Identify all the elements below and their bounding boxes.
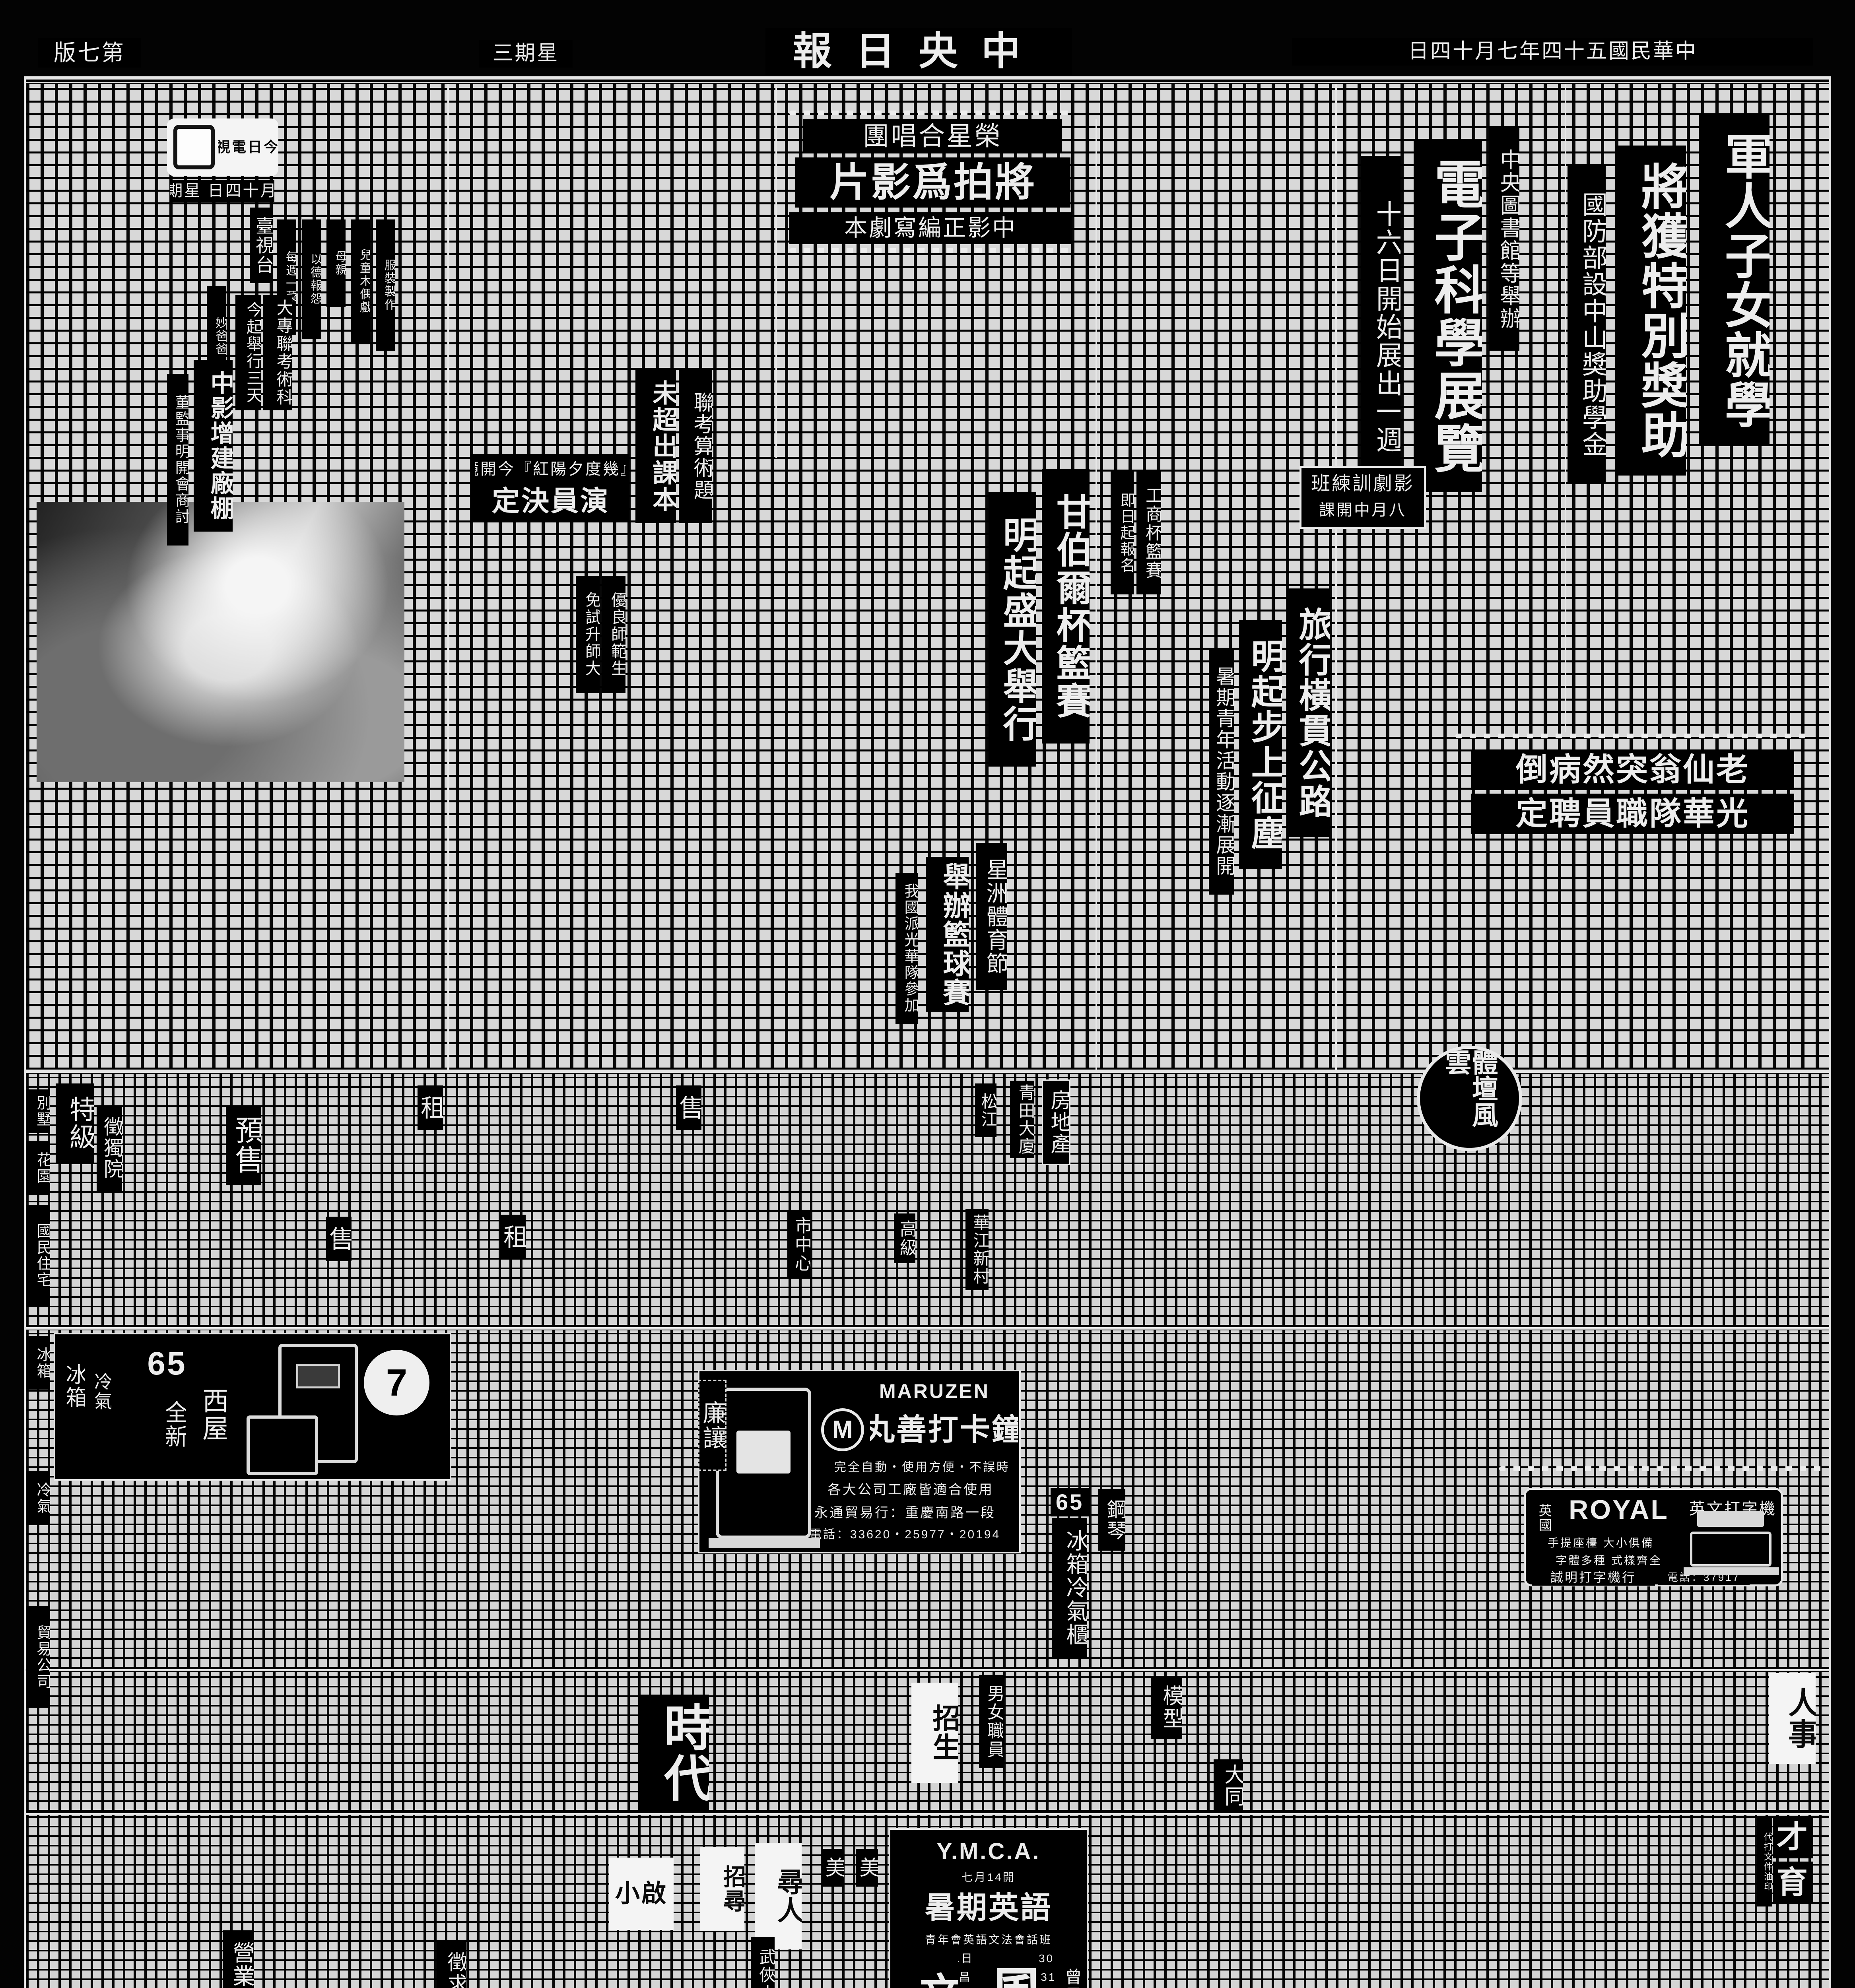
drama-class-line-2: 課開中月八: [1304, 499, 1421, 522]
royal-typewriter-carriage: [1697, 1511, 1764, 1527]
rule-col-a: [447, 84, 449, 1070]
royal-dots: [1499, 1466, 1822, 1471]
classified-label-piano: 鋼琴: [1098, 1489, 1125, 1551]
headline-choir-kicker: 團唱合星榮: [803, 119, 1062, 153]
sunset-movie-line-1: 鏡開今『紅陽夕度幾』: [475, 458, 625, 480]
rule-col-b: [1096, 119, 1097, 1070]
headline-military-sub: 國防部設中山獎助學金: [1568, 165, 1606, 483]
recruit-students-box: 招生: [911, 1683, 958, 1783]
tv-program-4: 以德報怨: [302, 219, 321, 339]
ymca-ad-title: Y.M.C.A.: [897, 1836, 1080, 1867]
beauty-col-2: 美: [856, 1849, 878, 1887]
masthead-title: 報日央中: [765, 28, 1072, 75]
appliance-ad-fridge-label: 冰箱: [60, 1339, 85, 1433]
classified-label-times: 時代: [639, 1695, 709, 1811]
rule-band-2: [24, 1327, 1831, 1330]
beauty-col-1: 美: [822, 1849, 844, 1887]
rule-col-c: [1335, 84, 1337, 1070]
royal-ad-line-2: 字體多種 式樣齊全: [1542, 1552, 1676, 1569]
classified-label-detached: 徵獨院: [97, 1105, 122, 1191]
headline-science-main: 電子科學展覽: [1414, 140, 1482, 492]
classified-label-qingtian: 青田大廈: [1010, 1081, 1034, 1158]
classified-label-fridge65: 65: [1051, 1488, 1089, 1516]
sunset-movie-line-2: 定決員演: [487, 483, 614, 519]
headline-gamble-cup-2: 明起盛大舉行: [989, 492, 1036, 767]
headline-crossroad-trip-1: 旅行橫貫公路: [1287, 588, 1330, 837]
rule-band-1: [24, 1070, 1831, 1073]
classified-label-premium: 特級: [56, 1083, 94, 1163]
date-line: 日四十月七年四十五國民華中: [1292, 38, 1813, 66]
deco-dots-elder: [1455, 734, 1813, 738]
headline-exam-math-2: 未超出課本: [635, 369, 676, 523]
royal-ad-origin: 英國: [1531, 1495, 1551, 1541]
headline-elder-ill-1: 倒病然突翁仙老: [1471, 749, 1794, 790]
royal-ad-line-1: 手提座檯 大小俱備: [1534, 1535, 1668, 1551]
appliance-ad-brandnew: 全新: [157, 1392, 186, 1457]
headline-crossroad-trip-2: 明起步上征塵: [1239, 620, 1282, 869]
deco-dots-choir-top: [789, 111, 1072, 115]
maruzen-punchclock-dial: [736, 1431, 791, 1474]
headline-choir-main: 片影爲拍將: [795, 157, 1070, 208]
tv-logo-text: 視電日今: [218, 127, 278, 167]
appliance-ad-westinghouse: 西屋: [196, 1379, 227, 1450]
classified-label-rent-2: 租: [418, 1085, 443, 1130]
headline-crossroad-trip-sub: 暑期青年活動逐漸展開: [1209, 648, 1234, 895]
rule-top-1: [24, 76, 1831, 80]
appliance-ad-unit-front: [247, 1415, 318, 1475]
headline-normal-students-2: 免試升師大: [576, 576, 600, 693]
culture-label: 文化: [911, 1948, 958, 1988]
headline-cmpc-studio: 中影增建廠棚: [194, 360, 233, 532]
classified-label-downtown: 市中心: [787, 1212, 810, 1277]
missing-person-box: 尋人: [755, 1843, 802, 1949]
drama-class-line-1: 班練訓劇影: [1304, 472, 1421, 496]
appliance-ad-model: 65: [139, 1343, 195, 1384]
headline-exam-math-1: 聯考算術題: [679, 369, 712, 523]
page-number-label: 版七第: [38, 38, 141, 68]
newspaper-page: 版七第 三期星 報日央中 日四十月七年四十五國民華中 視電日今三期星 日四十月七…: [0, 0, 1855, 1988]
tv-program-3: 母親: [326, 219, 346, 307]
classified-label-model: 模型: [1151, 1676, 1182, 1739]
sports-column-stamp: 體壇風雲: [1417, 1046, 1522, 1151]
headline-biz-cup-2: 即日起報名: [1111, 471, 1134, 594]
classified-label-presale: 預售: [226, 1105, 261, 1185]
classified-label-staff: 男女職員: [979, 1675, 1003, 1768]
rule-band-4: [24, 1813, 1831, 1815]
headline-military-main-2: 將獲特別獎助: [1615, 146, 1686, 476]
classified-label-datong: 大同: [1214, 1759, 1243, 1812]
index-label-garden: 花園: [26, 1141, 50, 1195]
maruzen-m-circle-icon: M: [821, 1408, 864, 1451]
rule-top-2: [24, 82, 1831, 83]
deco-dots-choir-bottom: [789, 248, 1072, 253]
classified-label-songjiang: 松江: [975, 1083, 996, 1137]
maruzen-ad-line-1: 完全自動・使用方便・不誤時: [827, 1458, 1017, 1477]
maruzen-ad-brand-latin: MARUZEN: [855, 1379, 1014, 1404]
ymca-ad-kicker: 七月14開: [897, 1870, 1080, 1885]
ymca-ad-line-1: 青年會英語文法會話班: [894, 1932, 1083, 1948]
headline-singapore-sports-1: 星洲體育節: [976, 843, 1007, 990]
classified-label-sale-2: 售: [326, 1217, 352, 1261]
classified-noise-1: [26, 1074, 1829, 1326]
maruzen-ad-line-2: 各大公司工廠皆適合使用: [803, 1480, 1018, 1500]
rule-band-3: [24, 1669, 1831, 1671]
class-label-business: 營業: [223, 1930, 254, 1988]
maruzen-ad-phone: 電話：33620・25977・20194: [791, 1526, 1019, 1543]
royal-ad-brand: ROYAL: [1553, 1492, 1684, 1528]
headline-singapore-sports-2: 舉辦籃球賽: [926, 857, 969, 1012]
appliance-ad-unit-window: [296, 1364, 340, 1388]
headline-joint-exam-art-2: 今起舉行三天: [235, 295, 261, 410]
index-label-aircon: 冷氣: [26, 1471, 50, 1525]
headline-gamble-cup-1: 甘伯爾杯籃賽: [1042, 469, 1090, 744]
appliance-ad-aircon-label: 冷氣: [87, 1352, 111, 1431]
classified-label-wuxia: 武俠小說: [751, 1937, 775, 1988]
classified-label-rent-1: 租: [500, 1215, 526, 1259]
index-label-villa: 別墅: [26, 1089, 50, 1133]
maruzen-punchclock-base: [709, 1538, 820, 1548]
weekday-label: 三期星: [479, 40, 573, 68]
fengshui-label: 風水: [971, 1946, 1039, 1988]
talent-services-col: 代打文件油印: [1757, 1817, 1772, 1906]
small-notice-box: 小啟: [609, 1858, 674, 1930]
tv-set-icon: [173, 125, 215, 169]
classified-label-wanted: 徵求: [437, 1940, 466, 1988]
headline-science-sub: 十六日開始展出一週: [1361, 156, 1400, 498]
index-label-fridge: 冰箱: [26, 1336, 50, 1390]
classified-label-lease: 廉讓: [698, 1380, 726, 1471]
appliance-ad-brand-circle: 7: [364, 1350, 429, 1415]
rule-col-e: [775, 84, 777, 458]
headline-singapore-sports-sub: 我國派光華隊參加: [895, 873, 918, 1024]
ymca-ad-course: 暑期英語: [915, 1889, 1062, 1928]
headline-normal-students-1: 優良師範生: [602, 576, 625, 693]
tv-program-1: 服裝製作: [376, 219, 395, 351]
headline-choir-sub: 本劇寫編正影中: [789, 212, 1072, 244]
rule-right-edge: [1829, 76, 1831, 1988]
fengshui-master: 曾子南: [1056, 1960, 1080, 1988]
rule-left-edge: [24, 76, 26, 1988]
headline-joint-exam-art-1: 大專聯考術科: [263, 295, 292, 410]
headline-science-kicker: 中央圖書館等舉辦: [1489, 128, 1519, 351]
seek-notice-box: 招尋: [700, 1847, 744, 1931]
classified-label-sale-1: 售: [676, 1085, 701, 1130]
personnel-box: 人事: [1769, 1673, 1816, 1764]
tv-station-label: 臺視台: [250, 208, 273, 283]
index-label-trading-co: 貿易公司: [26, 1606, 50, 1708]
tv-program-2: 兒童木偶戲: [351, 219, 370, 343]
royal-ad-shop: 誠明打字機行: [1532, 1569, 1655, 1586]
classified-label-huajiang: 華江新村: [965, 1209, 989, 1290]
talent-label-2: 育: [1773, 1862, 1813, 1904]
royal-typewriter-base: [1684, 1567, 1779, 1575]
news-photo: [37, 502, 404, 782]
headline-military-main-1: 軍人子女就學: [1699, 115, 1770, 445]
headline-cmpc-studio-sub: 董監事明開會商討: [167, 374, 188, 546]
royal-typewriter-body: [1690, 1532, 1771, 1567]
headline-biz-cup-1: 工商杯籃賽: [1136, 471, 1161, 594]
maruzen-ad-line-3: 永通貿易行：重慶南路一段: [791, 1503, 1019, 1523]
classified-label-highclass: 高級: [894, 1213, 915, 1263]
classified-label-fridge-cabinet: 冰箱冷氣櫃: [1052, 1518, 1087, 1657]
rule-col-d: [1565, 84, 1566, 732]
classified-label-realestate: 房地產: [1042, 1079, 1070, 1165]
headline-elder-ill-2: 定聘員職隊華光: [1471, 794, 1794, 834]
talent-label-1: 才: [1773, 1816, 1813, 1858]
maruzen-ad-product: 丸善打卡鐘: [870, 1409, 1018, 1451]
tv-date-line: 三期星 日四十月七: [170, 180, 274, 202]
index-label-public-housing: 國民住宅: [26, 1205, 50, 1306]
